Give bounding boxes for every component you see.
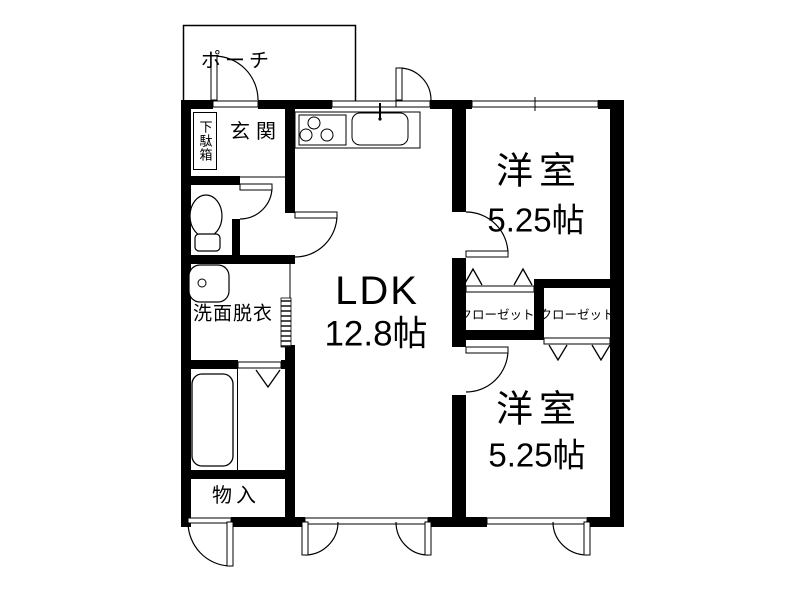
room-storage [191, 479, 285, 517]
room-toilet [191, 185, 232, 255]
floorplan: ポーチ 下駄箱 玄関 洗面脱衣 物入 LDK 12.8帖 洋室 5.25帖 洋室… [0, 0, 800, 600]
room-bedroom-bottom [466, 345, 610, 517]
room-closet-right [544, 288, 610, 338]
bedroom-bottom-casement-icon [553, 522, 590, 555]
storage-door-threshold [188, 518, 231, 523]
ldk-window [305, 518, 428, 524]
room-bedroom-top [466, 109, 610, 286]
bedroom-bottom-window [487, 518, 587, 524]
toilet-door-icon [240, 184, 272, 219]
room-porch [183, 25, 356, 104]
room-entrance [191, 109, 285, 176]
bath-door-threshold [238, 362, 281, 368]
ldk-casement-right-icon [396, 522, 431, 555]
closet-right-doorline [544, 338, 610, 344]
kitchen-back-door-icon [396, 68, 431, 100]
room-bathroom [191, 369, 285, 470]
storage-exterior-door-icon [188, 522, 233, 566]
room-washroom [191, 264, 285, 360]
ldk-casement-left-icon [302, 522, 338, 555]
room-closet-left [466, 292, 534, 330]
room-ldk [295, 109, 452, 517]
kitchen-door-threshold [396, 101, 430, 107]
